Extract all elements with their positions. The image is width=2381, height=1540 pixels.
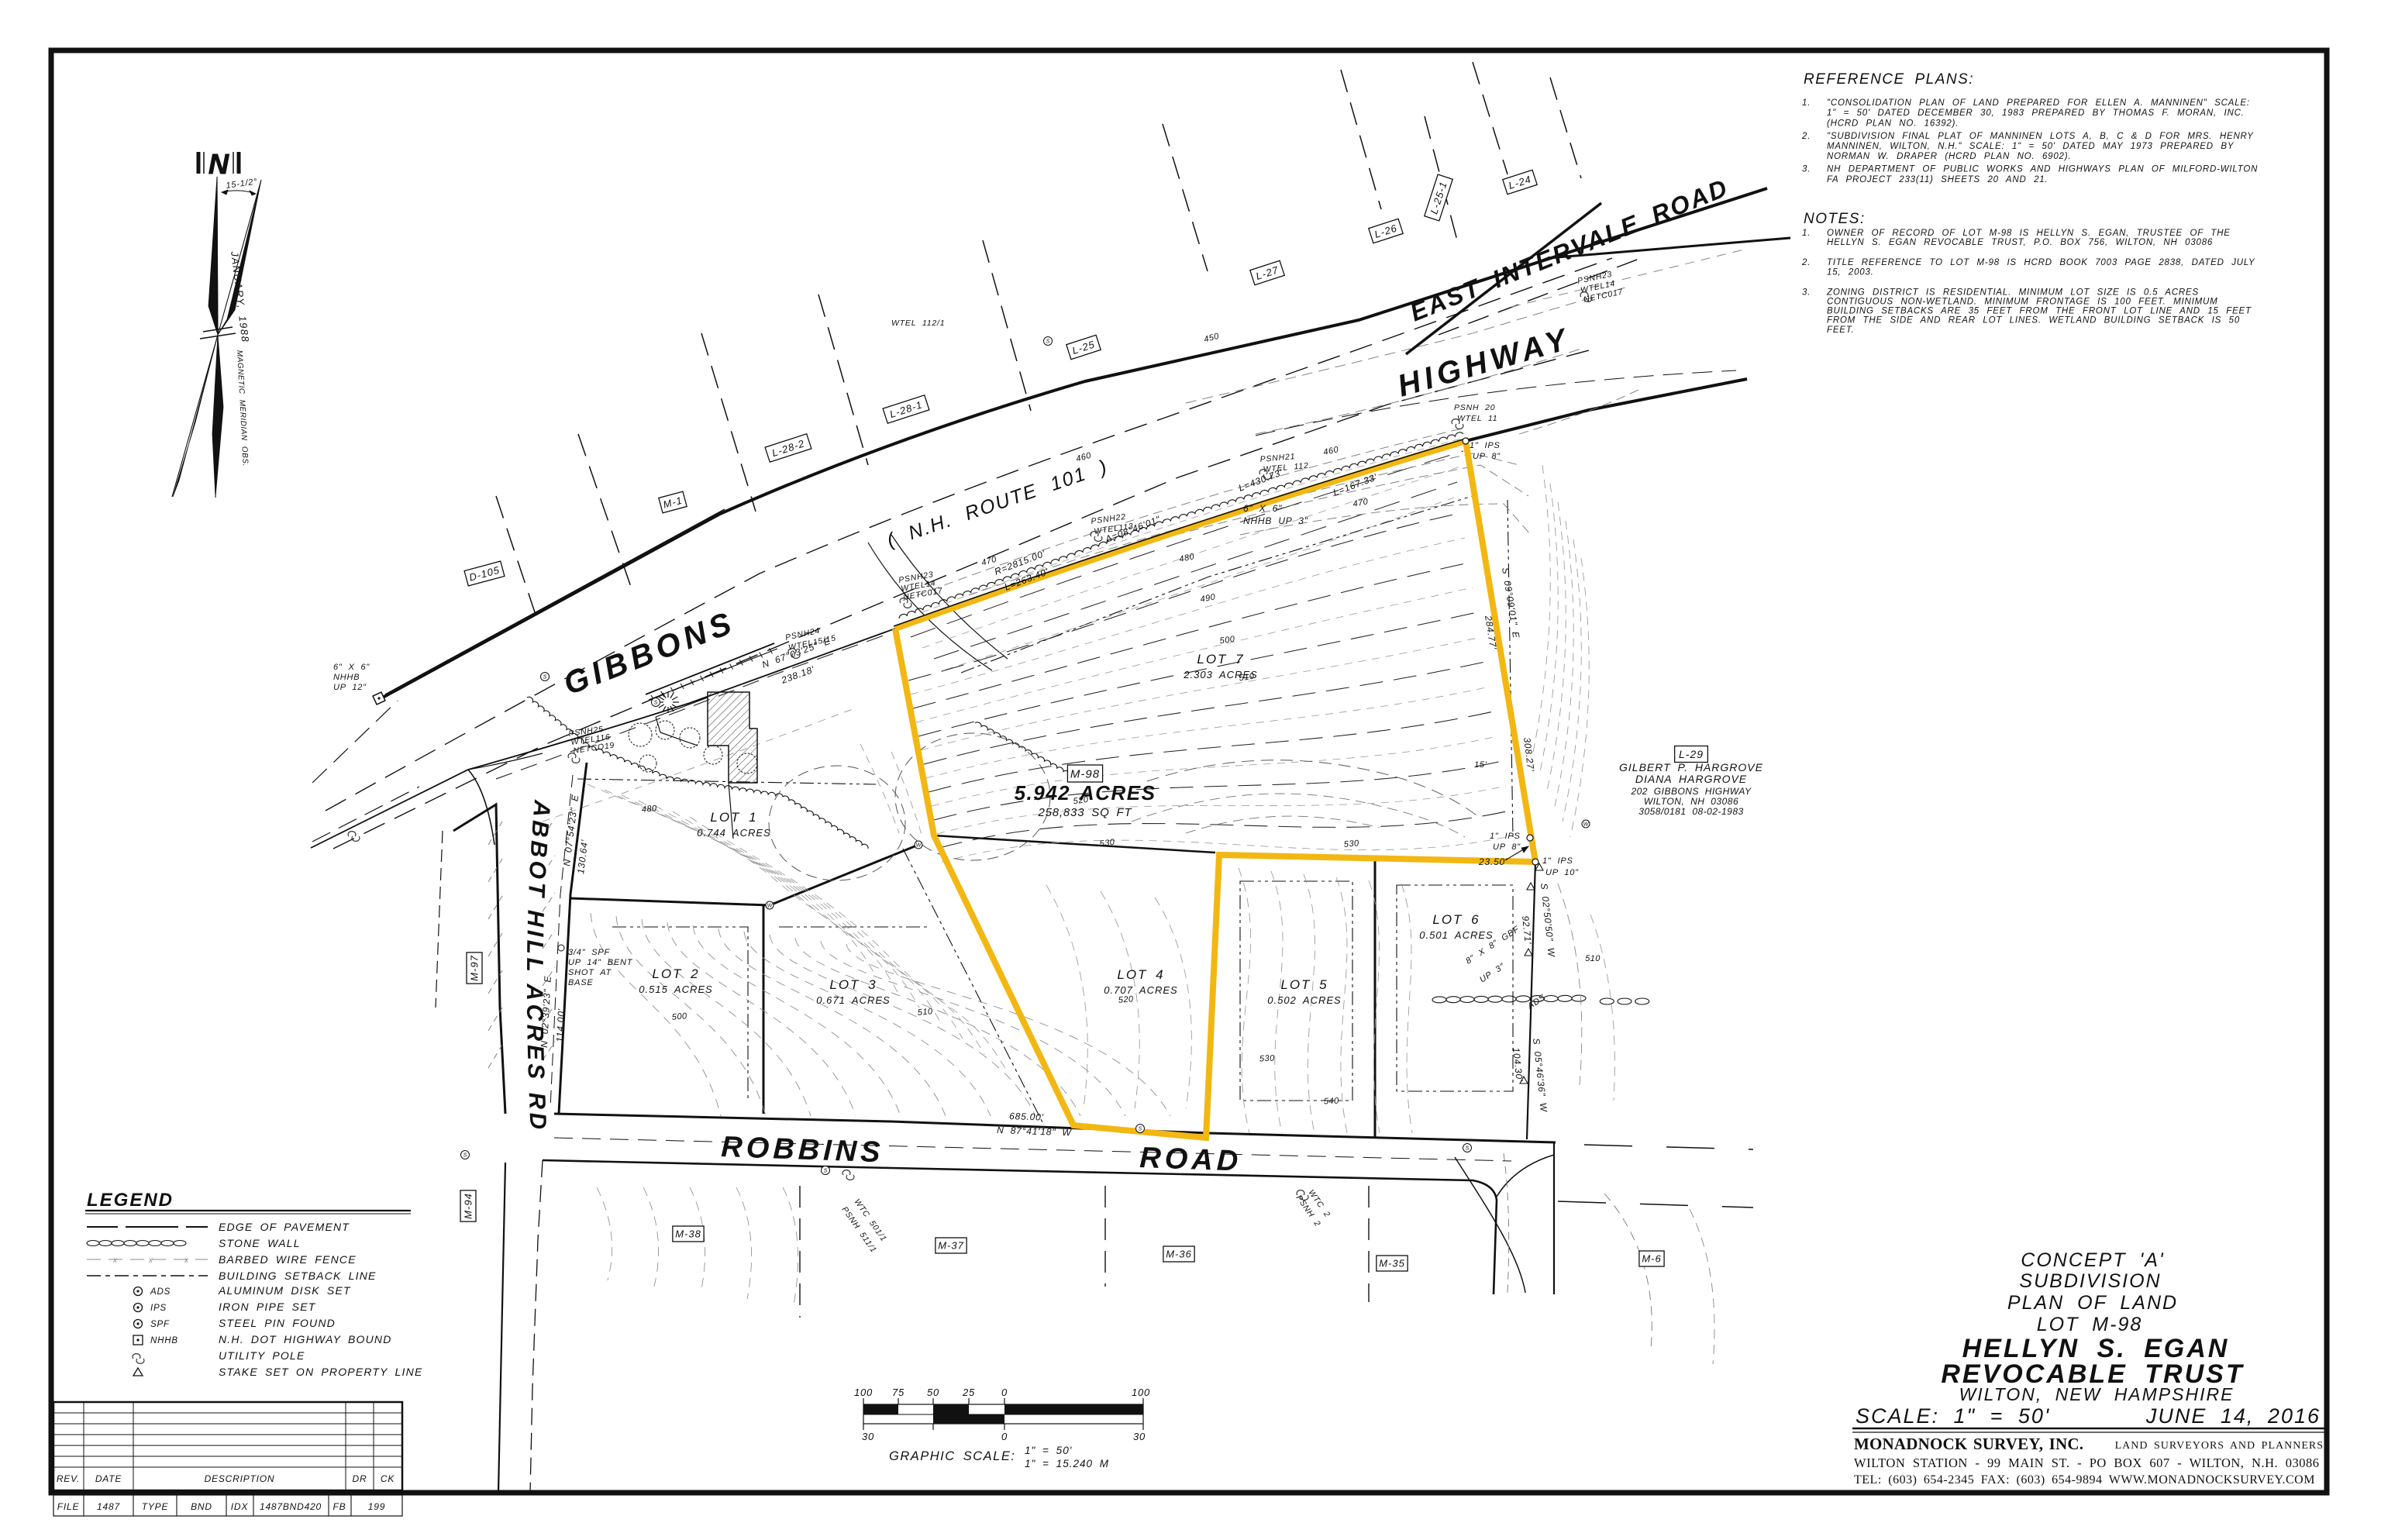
svg-text:ADS: ADS <box>150 1287 171 1297</box>
svg-text:FEET.: FEET. <box>1827 326 1855 335</box>
svg-text:STAKE SET ON PROPERTY LINE: STAKE SET ON PROPERTY LINE <box>219 1366 422 1378</box>
svg-text:LOT 5: LOT 5 <box>1280 977 1328 992</box>
svg-text:x: x <box>148 1256 153 1265</box>
svg-text:WTEL 11: WTEL 11 <box>1457 414 1497 423</box>
svg-text:M-98: M-98 <box>1070 767 1100 780</box>
svg-text:FROM THE SIDE AND REAR LOT LIN: FROM THE SIDE AND REAR LOT LINES. WETLAN… <box>1827 316 2240 326</box>
svg-text:L-29: L-29 <box>1679 748 1704 760</box>
svg-text:M-94: M-94 <box>463 1193 474 1219</box>
svg-text:PSNH 20: PSNH 20 <box>1454 403 1495 412</box>
svg-text:UP 8": UP 8" <box>1473 452 1501 461</box>
svg-text:0.515 ACRES: 0.515 ACRES <box>639 984 712 995</box>
svg-text:NOTES:: NOTES: <box>1804 211 1866 227</box>
svg-text:IPS: IPS <box>150 1304 167 1313</box>
svg-text:BUILDING SETBACK LINE: BUILDING SETBACK LINE <box>219 1270 377 1282</box>
svg-text:202 GIBBONS HIGHWAY: 202 GIBBONS HIGHWAY <box>1630 786 1752 797</box>
svg-text:1" = 50': 1" = 50' <box>1025 1445 1072 1456</box>
svg-text:25: 25 <box>962 1387 975 1398</box>
svg-text:M-35: M-35 <box>1379 1258 1405 1270</box>
svg-text:x: x <box>184 1256 189 1265</box>
svg-text:UTILITY POLE: UTILITY POLE <box>219 1349 305 1362</box>
svg-text:IRON PIPE SET: IRON PIPE SET <box>219 1301 316 1313</box>
svg-text:530: 530 <box>1343 839 1359 849</box>
svg-text:1.: 1. <box>1802 98 1811 108</box>
svg-text:500: 500 <box>671 1011 687 1022</box>
svg-text:BUILDING SETBACKS ARE 35 FEET: BUILDING SETBACKS ARE 35 FEET FROM THE F… <box>1827 307 2252 316</box>
svg-text:N.H. DOT HIGHWAY BOUND: N.H. DOT HIGHWAY BOUND <box>219 1333 392 1345</box>
svg-text:0: 0 <box>1001 1431 1008 1442</box>
svg-text:114.00': 114.00' <box>554 1008 567 1042</box>
svg-text:M-37: M-37 <box>938 1240 964 1252</box>
svg-text:REFERENCE PLANS:: REFERENCE PLANS: <box>1804 71 1974 88</box>
svg-text:"CONSOLIDATION PLAN OF LAND PR: "CONSOLIDATION PLAN OF LAND PREPARED FOR… <box>1827 98 2250 108</box>
svg-text:23.50': 23.50' <box>1478 856 1508 867</box>
svg-text:HELLYN S. EGAN REVOCABLE TRUST: HELLYN S. EGAN REVOCABLE TRUST, P.O. BOX… <box>1827 238 2213 247</box>
svg-text:LAND SURVEYORS AND PLANNERS: LAND SURVEYORS AND PLANNERS <box>2115 1440 2324 1452</box>
svg-text:ROBBINS: ROBBINS <box>721 1131 885 1169</box>
svg-text:480: 480 <box>641 804 657 815</box>
svg-text:UP 8": UP 8" <box>1493 842 1521 852</box>
svg-text:REV.: REV. <box>57 1473 80 1484</box>
svg-text:NHHB UP 3": NHHB UP 3" <box>1243 515 1308 526</box>
svg-text:PLAN OF LAND: PLAN OF LAND <box>2007 1292 2178 1314</box>
svg-text:EDGE OF PAVEMENT: EDGE OF PAVEMENT <box>219 1221 350 1233</box>
svg-text:CK: CK <box>381 1473 395 1484</box>
svg-text:540: 540 <box>1324 1096 1340 1106</box>
svg-text:0.707 ACRES: 0.707 ACRES <box>1104 984 1177 996</box>
svg-text:WILTON, NH 03086: WILTON, NH 03086 <box>1644 796 1738 807</box>
svg-text:CONCEPT 'A': CONCEPT 'A' <box>2021 1249 2164 1271</box>
svg-text:UP 12": UP 12" <box>333 683 367 692</box>
svg-text:(HCRD PLAN NO. 16392).: (HCRD PLAN NO. 16392). <box>1827 119 1959 128</box>
svg-text:30: 30 <box>862 1431 874 1442</box>
svg-text:LOT 7: LOT 7 <box>1197 652 1244 667</box>
svg-text:NHHB: NHHB <box>333 673 360 682</box>
svg-text:M-38: M-38 <box>675 1228 701 1240</box>
svg-text:0.671 ACRES: 0.671 ACRES <box>816 994 890 1006</box>
svg-text:258,833 SQ FT: 258,833 SQ FT <box>1038 806 1133 819</box>
svg-text:3.: 3. <box>1802 288 1811 297</box>
svg-text:1" IPS: 1" IPS <box>1490 832 1521 841</box>
svg-text:0: 0 <box>1001 1387 1008 1398</box>
svg-text:LOT 4: LOT 4 <box>1117 967 1164 982</box>
svg-text:SHOT AT: SHOT AT <box>568 968 612 977</box>
svg-text:SPF: SPF <box>150 1320 170 1329</box>
svg-text:JUNE 14, 2016: JUNE 14, 2016 <box>2145 1404 2321 1428</box>
svg-text:NORMAN W. DRAPER (HCRD PLAN N: NORMAN W. DRAPER (HCRD PLAN NO. 6902). <box>1827 152 2071 161</box>
svg-text:FA PROJECT 233(11) SHEETS 20 A: FA PROJECT 233(11) SHEETS 20 AND 21. <box>1827 175 2048 184</box>
svg-text:S: S <box>463 1153 467 1159</box>
svg-text:15': 15' <box>1474 760 1487 770</box>
svg-text:1" IPS: 1" IPS <box>1470 441 1501 450</box>
svg-text:LOT 3: LOT 3 <box>829 977 877 992</box>
svg-text:LOT M-98: LOT M-98 <box>2037 1314 2143 1335</box>
svg-text:199: 199 <box>368 1501 385 1512</box>
svg-text:DR: DR <box>353 1473 367 1484</box>
svg-text:3058/0181 08-02-1983: 3058/0181 08-02-1983 <box>1638 806 1743 817</box>
svg-text:FILE: FILE <box>57 1501 80 1512</box>
svg-text:GILBERT P. HARGROVE: GILBERT P. HARGROVE <box>1619 761 1763 773</box>
svg-text:GRAPHIC SCALE:: GRAPHIC SCALE: <box>889 1449 1015 1463</box>
svg-text:15, 2003.: 15, 2003. <box>1827 267 1874 277</box>
svg-text:3.: 3. <box>1802 165 1811 174</box>
svg-text:FB: FB <box>333 1501 346 1512</box>
svg-text:BND: BND <box>191 1501 212 1512</box>
svg-text:0.744 ACRES: 0.744 ACRES <box>697 827 770 839</box>
svg-text:SUBDIVISION: SUBDIVISION <box>2019 1270 2161 1292</box>
svg-text:WTEL 112/1: WTEL 112/1 <box>891 319 945 328</box>
svg-text:S: S <box>543 675 547 680</box>
svg-text:M-36: M-36 <box>1166 1249 1192 1260</box>
svg-text:WILTON, NEW HAMPSHIRE: WILTON, NEW HAMPSHIRE <box>1959 1384 2235 1404</box>
svg-text:685.00': 685.00' <box>1009 1111 1044 1123</box>
svg-text:BARBED WIRE FENCE: BARBED WIRE FENCE <box>219 1253 357 1266</box>
svg-text:ALUMINUM DISK SET: ALUMINUM DISK SET <box>218 1284 351 1297</box>
svg-text:S: S <box>1466 1146 1470 1152</box>
svg-text:1487: 1487 <box>97 1501 120 1512</box>
svg-text:x: x <box>112 1256 118 1265</box>
svg-text:1" IPS: 1" IPS <box>1542 856 1573 866</box>
svg-text:510: 510 <box>917 1007 933 1018</box>
svg-text:TYPE: TYPE <box>142 1501 169 1512</box>
svg-text:M-6: M-6 <box>1642 1253 1661 1265</box>
svg-text:3/4" SPF: 3/4" SPF <box>568 948 611 957</box>
svg-text:S: S <box>1139 1127 1142 1132</box>
svg-text:2.303 ACRES: 2.303 ACRES <box>1183 669 1257 680</box>
svg-text:NHHB: NHHB <box>150 1336 178 1345</box>
svg-text:530: 530 <box>1259 1053 1276 1063</box>
svg-text:1487BND420: 1487BND420 <box>260 1501 322 1512</box>
svg-text:520: 520 <box>1118 994 1134 1005</box>
svg-text:DIANA HARGROVE: DIANA HARGROVE <box>1635 773 1747 785</box>
svg-text:75: 75 <box>892 1387 905 1398</box>
svg-text:6" X 6": 6" X 6" <box>333 663 370 672</box>
svg-text:"SUBDIVISION FINAL PLAT OF MAN: "SUBDIVISION FINAL PLAT OF MANNINEN LOTS… <box>1827 132 2254 141</box>
svg-text:1" = 50' DATED DECEMBER 30, 1: 1" = 50' DATED DECEMBER 30, 1983 PREPARE… <box>1827 109 2245 118</box>
svg-text:M-97: M-97 <box>469 955 481 981</box>
svg-text:STEEL PIN FOUND: STEEL PIN FOUND <box>219 1317 336 1329</box>
svg-text:STONE WALL: STONE WALL <box>219 1237 301 1249</box>
svg-text:0.501 ACRES: 0.501 ACRES <box>1419 929 1493 941</box>
svg-text:2.: 2. <box>1801 132 1811 141</box>
svg-text:BASE: BASE <box>568 978 594 987</box>
svg-text:OWNER OF RECORD OF LOT M-98 IS: OWNER OF RECORD OF LOT M-98 IS HELLYN S.… <box>1827 229 2231 238</box>
svg-text:ZONING DISTRICT IS RESIDENTIAL: ZONING DISTRICT IS RESIDENTIAL. MINIMUM … <box>1826 288 2199 297</box>
svg-text:LOT 6: LOT 6 <box>1432 912 1480 927</box>
svg-text:0.502 ACRES: 0.502 ACRES <box>1267 994 1341 1006</box>
svg-text:UP 10": UP 10" <box>1545 868 1579 877</box>
svg-text:DATE: DATE <box>95 1473 122 1484</box>
svg-text:100: 100 <box>854 1387 873 1398</box>
svg-text:50: 50 <box>927 1387 939 1398</box>
svg-text:WILTON STATION - 99 MAIN ST. -: WILTON STATION - 99 MAIN ST. - PO BOX 60… <box>1854 1456 2320 1470</box>
svg-text:TITLE REFERENCE TO LOT M-98 IS: TITLE REFERENCE TO LOT M-98 IS HCRD BOOK… <box>1827 258 2255 267</box>
svg-text:SCALE: 1" = 50': SCALE: 1" = 50' <box>1856 1404 2050 1428</box>
svg-text:S: S <box>1046 339 1050 345</box>
svg-text:6" X 6": 6" X 6" <box>1243 503 1282 514</box>
svg-text:2.: 2. <box>1801 258 1811 267</box>
svg-text:LOT 1: LOT 1 <box>710 810 757 825</box>
svg-text:S: S <box>654 701 658 706</box>
svg-text:DESCRIPTION: DESCRIPTION <box>205 1473 275 1484</box>
svg-text:100: 100 <box>1132 1387 1150 1398</box>
svg-text:30: 30 <box>1133 1431 1146 1442</box>
svg-text:NH DEPARTMENT OF PUBLIC WORKS: NH DEPARTMENT OF PUBLIC WORKS AND HIGHWA… <box>1827 165 2258 174</box>
svg-text:ROAD: ROAD <box>1139 1142 1242 1178</box>
svg-text:IDX: IDX <box>231 1501 249 1512</box>
svg-text:UP 14" BENT: UP 14" BENT <box>568 958 633 967</box>
svg-text:5.942 ACRES: 5.942 ACRES <box>1015 781 1156 804</box>
svg-text:1" = 15.240 M: 1" = 15.240 M <box>1025 1458 1109 1469</box>
svg-text:LOT 2: LOT 2 <box>652 966 699 981</box>
svg-text:510: 510 <box>1585 954 1601 963</box>
svg-text:CONTIGUOUS NON-WETLAND. MINIM: CONTIGUOUS NON-WETLAND. MINIMUM FRONTAGE… <box>1827 298 2218 307</box>
svg-text:TEL: (603) 654-2345 FAX: (6: TEL: (603) 654-2345 FAX: (603) 654-9894 … <box>1854 1473 2315 1487</box>
svg-text:S: S <box>824 1169 828 1174</box>
svg-text:N: N <box>208 148 229 180</box>
svg-text:MONADNOCK SURVEY, INC.: MONADNOCK SURVEY, INC. <box>1854 1435 2083 1453</box>
svg-text:MANNINEN, WILTON, N.H." SCALE: MANNINEN, WILTON, N.H." SCALE: 1" = 50' … <box>1827 142 2235 151</box>
svg-text:1.: 1. <box>1802 229 1811 238</box>
svg-text:LEGEND: LEGEND <box>87 1190 174 1211</box>
